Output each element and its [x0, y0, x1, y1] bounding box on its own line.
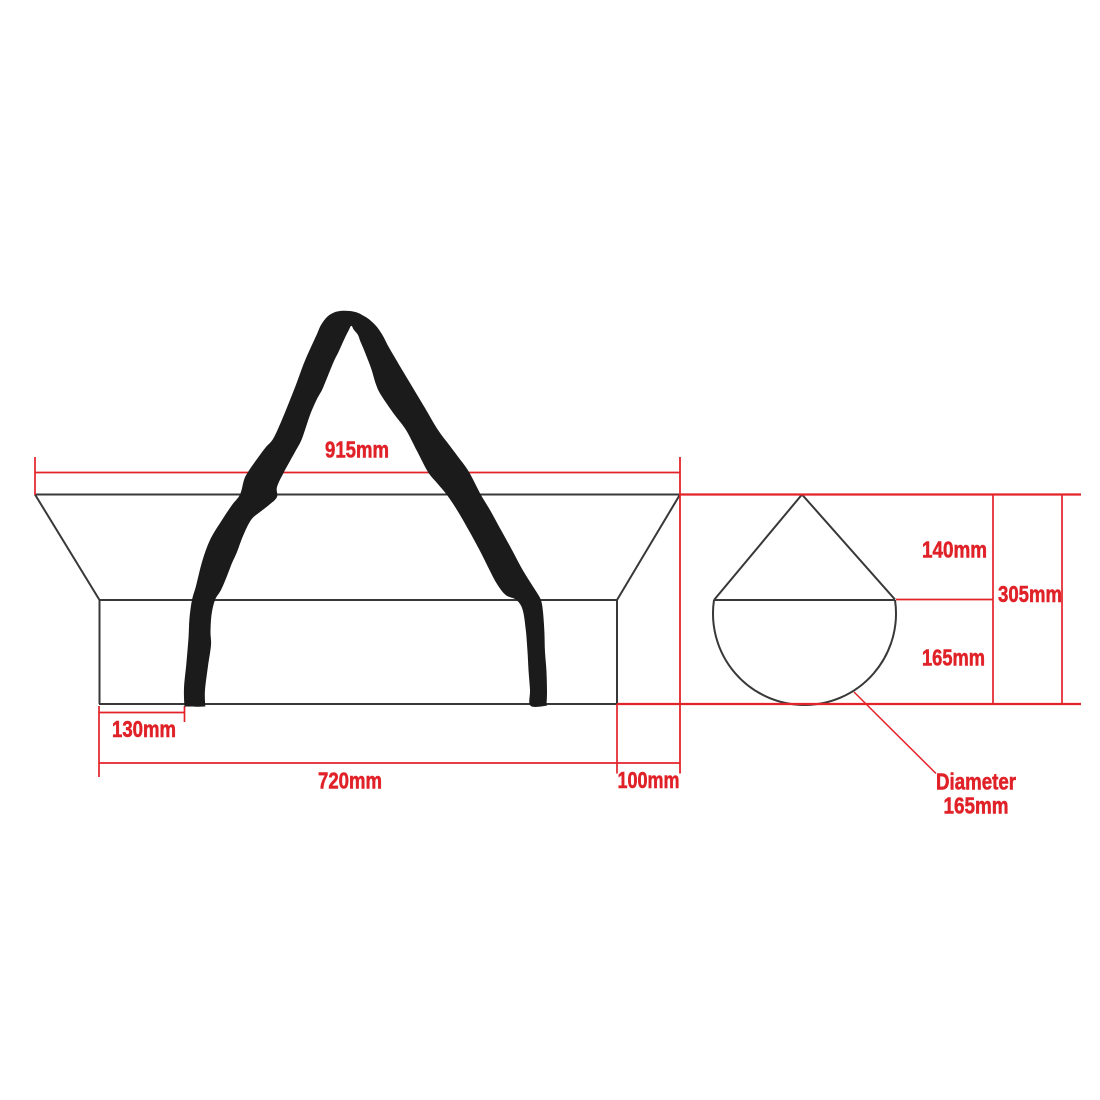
- svg-text:165mm: 165mm: [922, 645, 985, 671]
- svg-text:305mm: 305mm: [998, 581, 1062, 607]
- svg-text:165mm: 165mm: [944, 793, 1009, 819]
- svg-text:Diameter: Diameter: [936, 769, 1016, 795]
- svg-text:140mm: 140mm: [922, 537, 987, 563]
- svg-text:100mm: 100mm: [618, 767, 680, 793]
- svg-text:130mm: 130mm: [112, 716, 176, 742]
- svg-text:720mm: 720mm: [318, 768, 382, 794]
- svg-text:915mm: 915mm: [325, 437, 389, 463]
